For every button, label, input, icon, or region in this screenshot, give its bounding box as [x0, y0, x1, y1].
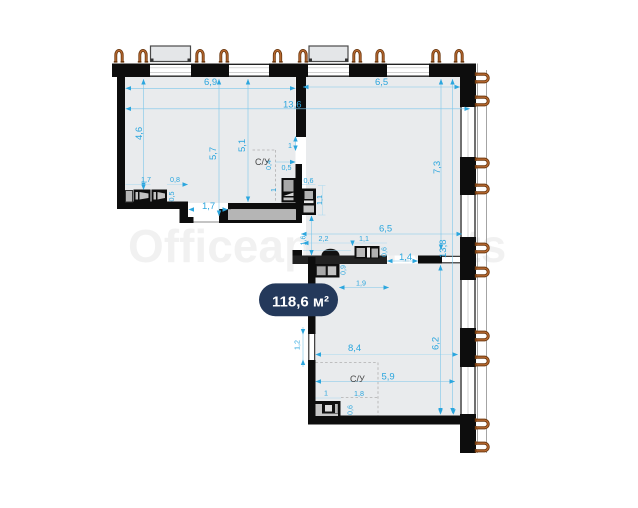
svg-text:С/У: С/У — [255, 157, 270, 167]
svg-text:118,6 м²: 118,6 м² — [272, 294, 329, 311]
svg-text:1,7: 1,7 — [202, 201, 215, 212]
svg-text:7,3: 7,3 — [432, 161, 443, 174]
svg-text:0,8: 0,8 — [170, 175, 180, 184]
svg-text:4,6: 4,6 — [134, 127, 145, 140]
svg-text:1,9: 1,9 — [356, 279, 366, 288]
svg-text:1,7: 1,7 — [141, 175, 151, 184]
svg-text:1: 1 — [269, 188, 278, 192]
svg-text:0,9: 0,9 — [339, 265, 348, 275]
svg-text:8,4: 8,4 — [348, 343, 361, 354]
svg-text:5,1: 5,1 — [237, 139, 248, 152]
svg-text:1,1: 1,1 — [315, 195, 324, 205]
svg-text:1: 1 — [288, 141, 292, 150]
svg-text:0,6: 0,6 — [346, 405, 355, 415]
svg-text:1,2: 1,2 — [293, 340, 302, 350]
svg-text:1,8: 1,8 — [354, 389, 364, 398]
svg-text:13,6: 13,6 — [283, 100, 302, 111]
svg-text:5,9: 5,9 — [382, 372, 395, 383]
svg-text:1,1: 1,1 — [359, 234, 369, 243]
svg-text:0,6: 0,6 — [380, 247, 389, 257]
svg-text:0,6: 0,6 — [304, 176, 314, 185]
svg-text:6,9: 6,9 — [204, 77, 217, 88]
svg-text:6,5: 6,5 — [379, 224, 392, 235]
svg-text:0,5: 0,5 — [282, 163, 292, 172]
svg-text:С/У: С/У — [350, 374, 365, 384]
svg-text:1,4: 1,4 — [399, 252, 412, 263]
svg-text:5,7: 5,7 — [208, 147, 219, 160]
svg-text:1: 1 — [324, 389, 328, 398]
svg-text:2,2: 2,2 — [319, 234, 329, 243]
svg-text:0,5: 0,5 — [167, 192, 176, 202]
svg-text:1,6: 1,6 — [299, 236, 308, 246]
svg-text:6,2: 6,2 — [431, 337, 442, 350]
svg-text:6,5: 6,5 — [375, 77, 388, 88]
svg-text:13,8: 13,8 — [438, 240, 449, 259]
